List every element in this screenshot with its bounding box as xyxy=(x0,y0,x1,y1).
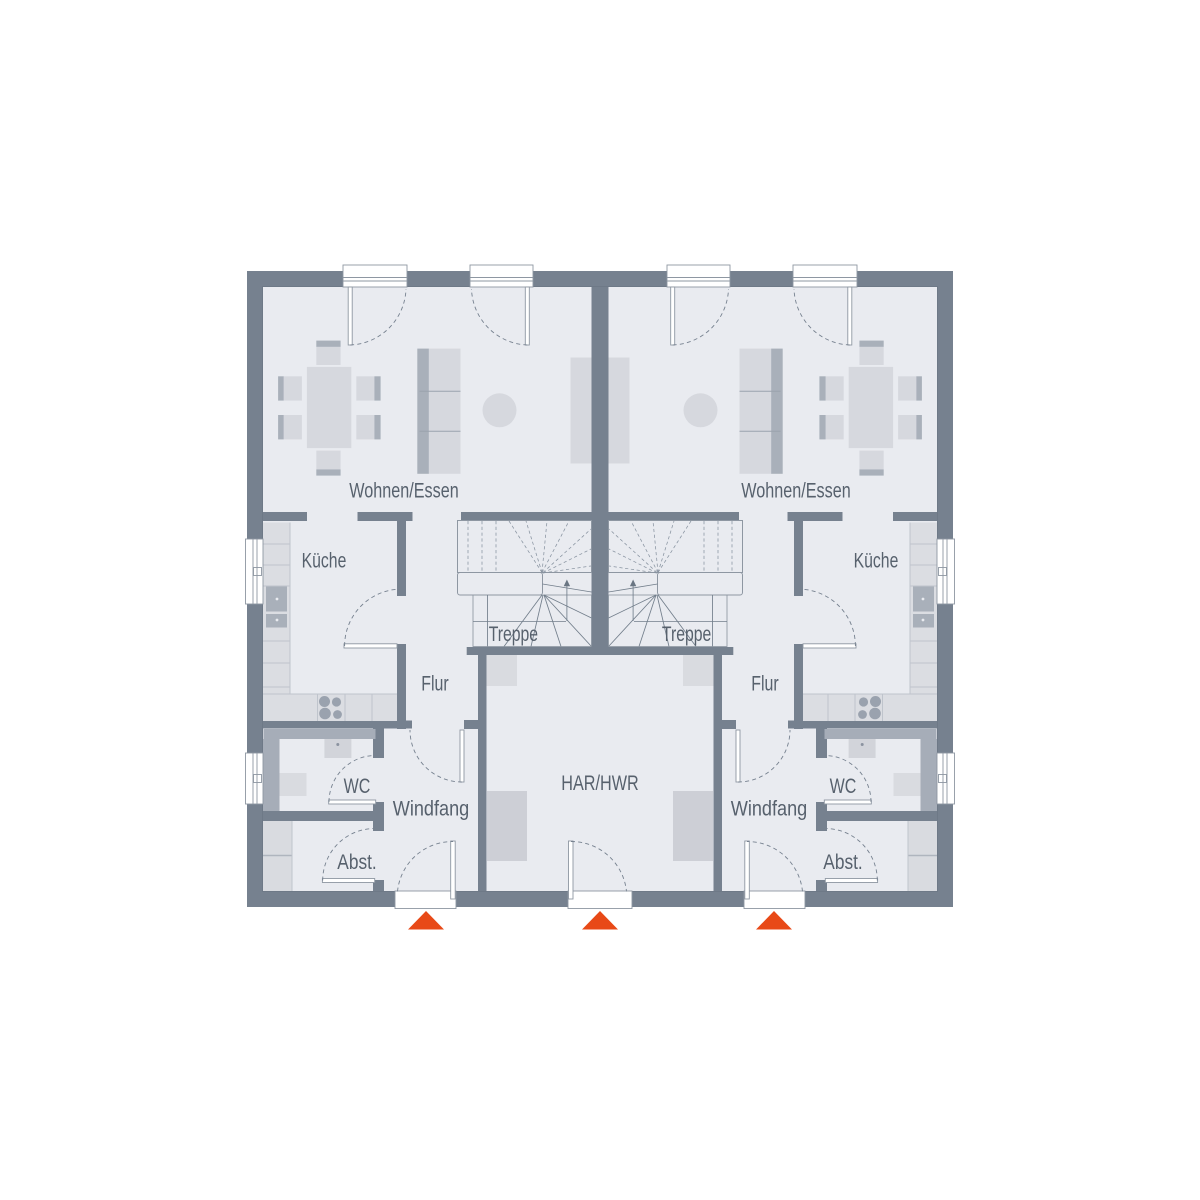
svg-text:Treppe: Treppe xyxy=(662,623,711,646)
svg-text:Windfang: Windfang xyxy=(393,798,470,821)
svg-text:Wohnen/Essen: Wohnen/Essen xyxy=(349,480,458,503)
svg-text:Flur: Flur xyxy=(421,673,448,696)
svg-text:Treppe: Treppe xyxy=(489,623,538,646)
svg-text:Windfang: Windfang xyxy=(731,798,808,821)
svg-text:Abst.: Abst. xyxy=(823,851,862,874)
svg-text:Küche: Küche xyxy=(854,550,899,573)
svg-text:WC: WC xyxy=(830,775,857,798)
svg-text:Wohnen/Essen: Wohnen/Essen xyxy=(741,480,850,503)
svg-text:HAR/HWR: HAR/HWR xyxy=(561,772,638,795)
svg-text:WC: WC xyxy=(344,775,371,798)
svg-text:Flur: Flur xyxy=(751,673,778,696)
svg-text:Küche: Küche xyxy=(302,550,347,573)
svg-text:Abst.: Abst. xyxy=(337,851,376,874)
